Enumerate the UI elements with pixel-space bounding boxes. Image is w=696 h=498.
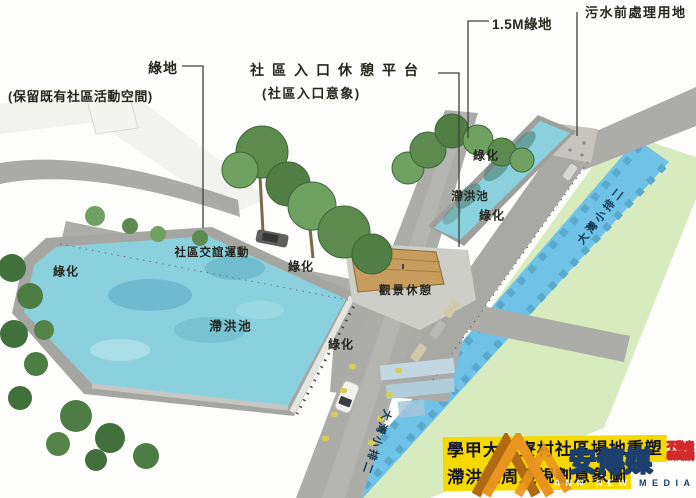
watermark-tagline-line1: 不動產	[667, 441, 694, 451]
label-detention-pond-linear: 滯洪池	[451, 188, 489, 204]
label-community-social: 社區交誼運動	[175, 244, 250, 260]
label-scenic-rest: 觀景休憩	[379, 282, 433, 298]
label-greening-2: 綠化	[288, 258, 314, 275]
callout-green-space-note: (保留既有社區活動空間)	[8, 86, 153, 105]
watermark-tagline: 不動產 新聞網	[667, 441, 694, 461]
label-greening-4: 綠化	[479, 207, 505, 224]
callout-green-strip: 1.5M綠地	[492, 13, 552, 33]
callout-green-space: 綠地	[148, 58, 178, 78]
callout-entry-platform: 社區入口休憩平台	[250, 60, 426, 80]
label-greening-5: 綠化	[328, 336, 354, 353]
trees-bottom-left	[46, 400, 159, 471]
watermark-media-label: MEDIA	[639, 478, 696, 488]
watermark-tagline-line2: 新聞網	[667, 451, 694, 461]
label-detention-pond-main: 滯洪池	[209, 316, 253, 335]
callout-entry-platform-note: (社區入口意象)	[262, 83, 361, 102]
label-greening-3: 綠化	[473, 147, 499, 164]
context-road-faded	[0, 90, 268, 214]
label-greening-1: 綠化	[53, 263, 79, 280]
car-dark	[255, 229, 289, 248]
media-watermark: ANN NEWS W 安傳媒 不動產 新聞網 MEDIA	[468, 433, 696, 498]
watermark-brand-name: 安傳媒	[569, 440, 653, 479]
callout-sewage-site: 污水前處理用地	[585, 2, 687, 21]
planning-concept-rendering: { "callouts": { "green_space": {"label":…	[0, 0, 696, 498]
